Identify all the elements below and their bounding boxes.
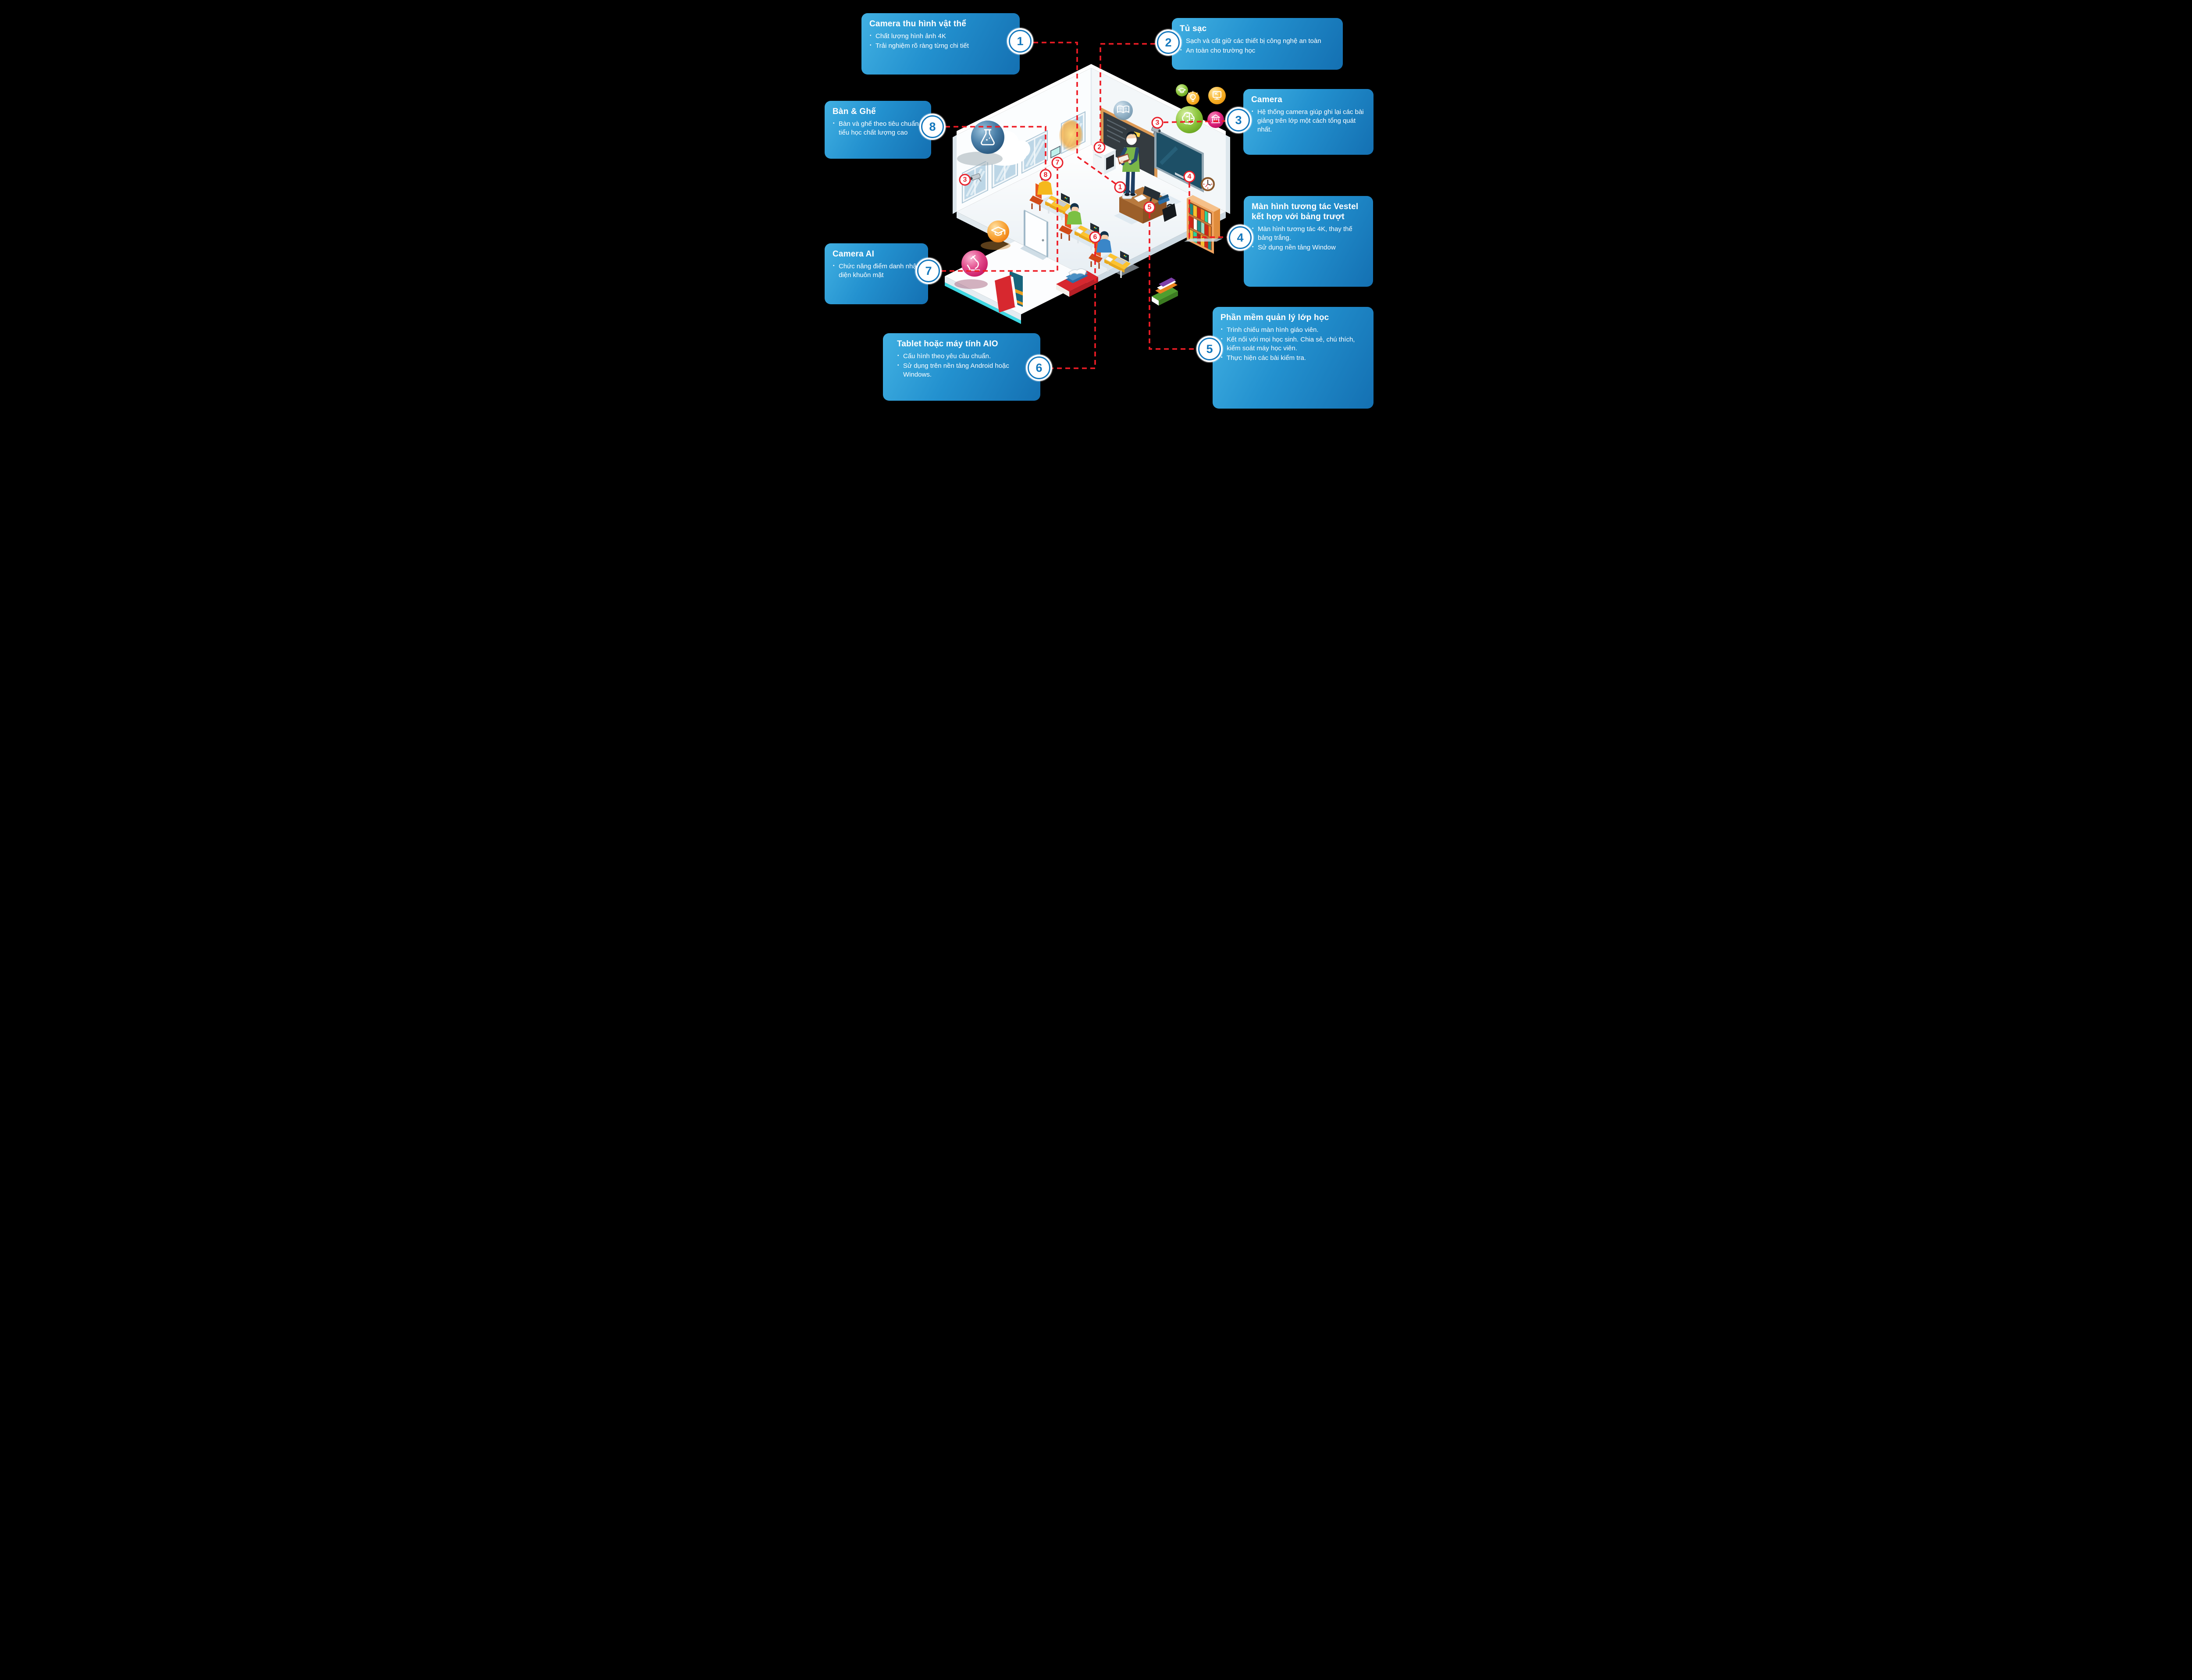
callout-title: Camera AI [833, 249, 920, 259]
callout-title: Tủ sạc [1180, 24, 1335, 34]
number-circle-1: 1 [1007, 28, 1033, 54]
callout-bullet: Chức năng điểm danh nhận diện khuôn mặt [833, 262, 920, 280]
number-circle-7: 7 [915, 258, 942, 284]
callout-desk-chair: Bàn & Ghế Bàn và ghế theo tiêu chuẩn tiể… [825, 101, 931, 159]
callout-bullet: Sạch và cất giữ các thiết bị công nghệ a… [1180, 37, 1335, 46]
callout-bullet: Bàn và ghế theo tiêu chuẩn tiểu học chất… [833, 120, 923, 137]
badge-7: 7 [1052, 157, 1064, 169]
number-circle-5: 5 [1196, 336, 1223, 362]
callout-object-camera: Camera thu hình vật thể Chất lượng hình … [861, 13, 1020, 75]
callout-bullet: Màn hình tương tác 4K, thay thế bảng trắ… [1252, 225, 1365, 242]
callout-title: Camera thu hình vật thể [869, 19, 1012, 29]
badge-3-right: 3 [1152, 117, 1164, 129]
clock [1202, 178, 1214, 190]
callout-bullet: Sử dụng nền tảng Window [1252, 243, 1365, 252]
badge-4: 4 [1184, 171, 1196, 183]
callout-bullet: An toàn cho trường học [1180, 46, 1335, 55]
callout-bullet: Sử dụng trên nền tảng Android hoặc Windo… [897, 362, 1032, 379]
callout-interactive-screen: Màn hình tương tác Vestel kết hợp với bả… [1244, 196, 1373, 287]
number-circle-3: 3 [1225, 107, 1252, 133]
badge-1: 1 [1114, 182, 1126, 193]
callout-bullet: Chất lượng hình ảnh 4K [869, 32, 1012, 41]
callout-camera: Camera Hệ thống camera giúp ghi lại các … [1243, 89, 1374, 155]
book-stack [1152, 278, 1178, 306]
badge-2: 2 [1094, 142, 1106, 153]
callout-title: Camera [1251, 95, 1366, 105]
callout-title: Màn hình tương tác Vestel kết hợp với bả… [1252, 202, 1365, 222]
number-circle-6: 6 [1026, 355, 1052, 381]
badge-8: 8 [1040, 169, 1052, 181]
sun-glow [1059, 120, 1083, 152]
number-circle-8: 8 [919, 114, 946, 140]
badge-6: 6 [1089, 231, 1101, 243]
open-book-icon [1114, 101, 1133, 120]
infographic-canvas: 1 2 3 3 4 5 6 7 8 Camera thu hình vật th… [818, 0, 1374, 420]
icon-bubbles [1176, 84, 1226, 133]
callout-bullet: Thực hiện các bài kiểm tra. [1221, 354, 1366, 363]
callout-charging-cabinet: Tủ sạc Sạch và cất giữ các thiết bị công… [1172, 18, 1343, 70]
callout-title: Bàn & Ghế [833, 107, 923, 117]
callout-ai-camera: Camera AI Chức năng điểm danh nhận diện … [825, 243, 928, 304]
callout-bullet: Hệ thống camera giúp ghi lại các bài giả… [1251, 108, 1366, 134]
callout-classroom-software: Phần mềm quản lý lớp học Trình chiếu màn… [1213, 307, 1374, 409]
callout-tablet-aio: Tablet hoặc máy tính AIO Cấu hình theo y… [883, 333, 1040, 401]
number-circle-4: 4 [1227, 224, 1253, 251]
callout-bullet: Kết nối với mọi học sinh. Chia sẻ, chú t… [1221, 335, 1366, 353]
callout-title: Tablet hoặc máy tính AIO [897, 339, 1032, 349]
callout-bullet: Cấu hình theo yêu cầu chuẩn. [897, 352, 1032, 361]
badge-3-left: 3 [959, 174, 971, 186]
number-circle-2: 2 [1155, 29, 1181, 56]
callout-bullet: Trình chiếu màn hình giáo viên. [1221, 326, 1366, 335]
badge-5: 5 [1144, 202, 1156, 214]
callout-bullet: Trải nghiệm rõ ràng từng chi tiết [869, 42, 1012, 50]
callout-title: Phần mềm quản lý lớp học [1221, 313, 1366, 323]
